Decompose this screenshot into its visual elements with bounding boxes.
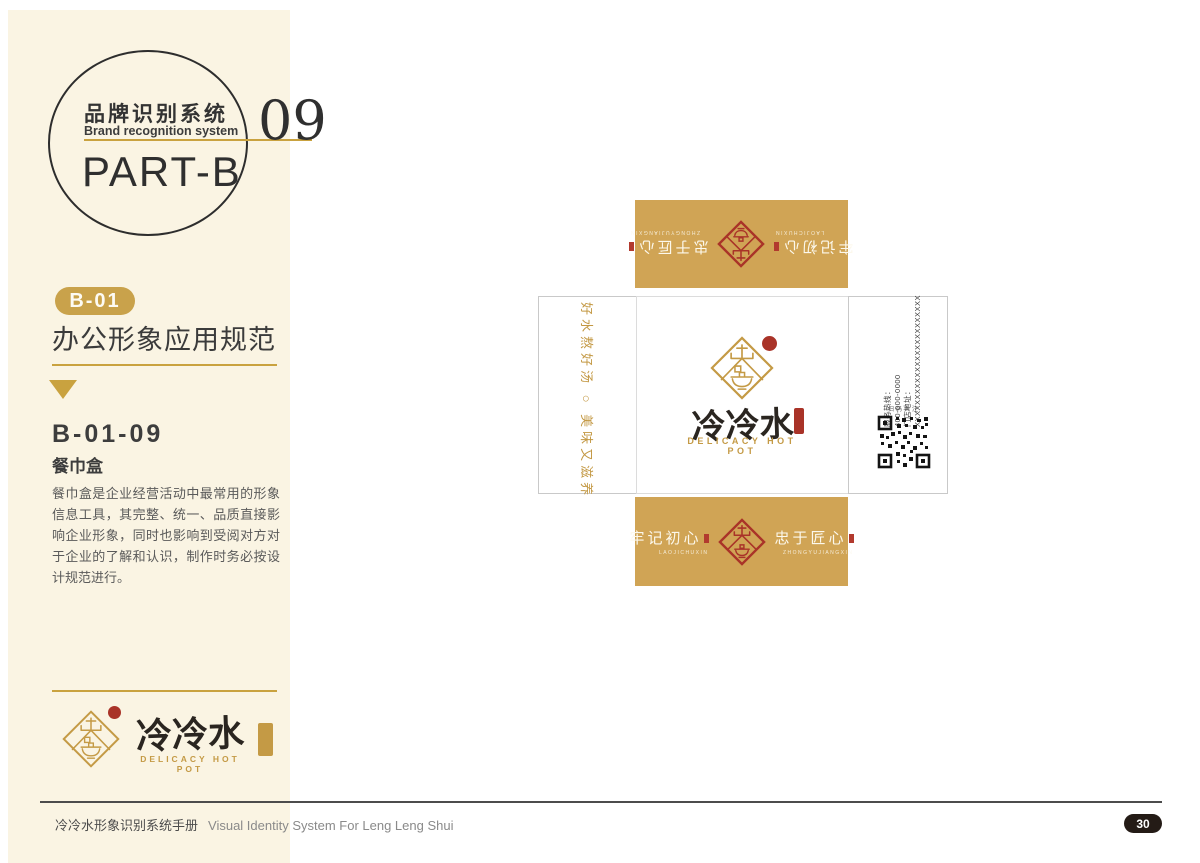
- gold-square-seal-icon: [258, 723, 273, 756]
- red-strip-seal-icon: [794, 408, 804, 434]
- footer-caption: 冷冷水形象识别系统手册Visual Identity System For Le…: [55, 815, 453, 834]
- header-part-label: PART-B: [82, 148, 242, 196]
- top-flap-content: 牢记初心 LAOJICHUXIN 忠于匠心 ZHONGYUJIANGXIN: [635, 200, 848, 288]
- header-title-en: Brand recognition system: [84, 124, 238, 138]
- flap-phrase-left: 牢记初心 LAOJICHUXIN: [775, 230, 854, 259]
- item-code: B-01-09: [52, 420, 163, 449]
- flap-phrase-left: 牢记初心 LAOJICHUXIN: [629, 527, 708, 556]
- panel-brand-english: DELICACY HOT POT: [672, 436, 812, 456]
- section-title: 办公形象应用规范: [52, 318, 276, 357]
- red-diamond-emblem-icon: [718, 518, 766, 566]
- item-name: 餐巾盒: [52, 452, 103, 477]
- page-number-badge: 30: [1124, 814, 1162, 833]
- header-circle: [48, 50, 248, 236]
- mini-red-seal-icon: [629, 243, 634, 252]
- pointer-triangle-icon: [49, 380, 77, 399]
- red-circle-seal-icon: [108, 706, 121, 719]
- footer-caption-en: Visual Identity System For Leng Leng Shu…: [208, 818, 453, 833]
- mini-red-seal-icon: [704, 534, 709, 543]
- flap-phrase-left-text: 牢记初心: [782, 239, 854, 255]
- flap-phrase-right-text: 忠于匠心: [636, 239, 708, 255]
- mini-red-seal-icon: [849, 534, 854, 543]
- qr-code-icon: [876, 414, 932, 470]
- flap-pinyin-right: ZHONGYUJIANGXIN: [629, 230, 708, 236]
- brand-name-calligraphy: 冷冷水: [123, 704, 257, 761]
- flap-phrase-left-text: 牢记初心: [629, 531, 701, 547]
- qr-caption: 扫码关注: [877, 404, 931, 413]
- red-diamond-emblem-icon: [718, 220, 766, 268]
- section-badge: B-01: [55, 287, 135, 315]
- mini-red-seal-icon: [775, 243, 780, 252]
- flap-phrase-right: 忠于匠心 ZHONGYUJIANGXIN: [775, 527, 854, 556]
- box-bottom-flap: 牢记初心 LAOJICHUXIN 忠于匠心 ZHONGYUJIANGXIN: [635, 497, 848, 586]
- item-description: 餐巾盒是企业经营活动中最常用的形象信息工具，其完整、统一、品质直接影响企业形象，…: [52, 483, 280, 588]
- side-panel-slogan: 好水熬好汤 ○ 美味又滋养: [578, 302, 597, 487]
- logo-divider-line: [52, 690, 277, 692]
- brand-name-english: DELICACY HOT POT: [126, 754, 254, 774]
- red-circle-seal-icon: [762, 336, 777, 351]
- flap-pinyin-left: LAOJICHUXIN: [775, 230, 854, 236]
- vi-manual-page: 品牌识别系统 Brand recognition system PART-B 0…: [0, 0, 1200, 863]
- box-top-flap: 牢记初心 LAOJICHUXIN 忠于匠心 ZHONGYUJIANGXIN: [635, 200, 848, 288]
- footer-divider-line: [40, 801, 1162, 803]
- flap-phrase-right: 忠于匠心 ZHONGYUJIANGXIN: [629, 230, 708, 259]
- header-section-number: 09: [258, 94, 327, 148]
- flap-phrase-right-text: 忠于匠心: [775, 531, 847, 547]
- flap-pinyin-left: LAOJICHUXIN: [629, 550, 708, 556]
- flap-pinyin-right: ZHONGYUJIANGXIN: [775, 550, 854, 556]
- section-underline: [52, 364, 277, 366]
- bottom-flap-content: 牢记初心 LAOJICHUXIN 忠于匠心 ZHONGYUJIANGXIN: [635, 497, 848, 586]
- footer-caption-cn: 冷冷水形象识别系统手册: [55, 818, 198, 833]
